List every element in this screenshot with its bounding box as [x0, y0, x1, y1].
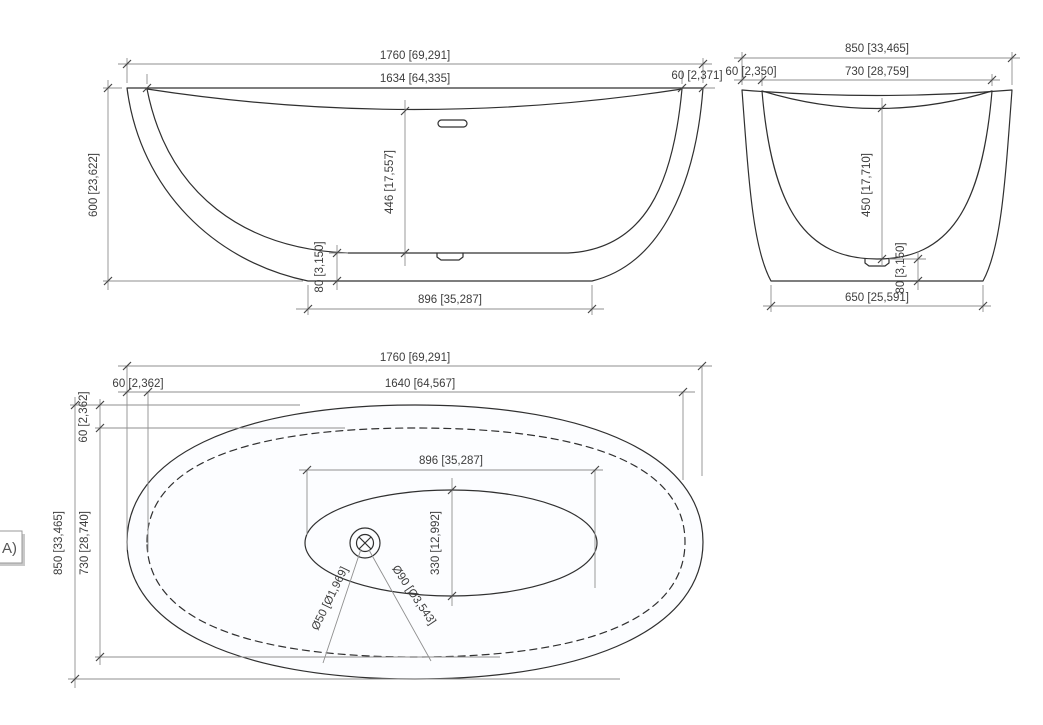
drawing-canvas: 1760 [69,291] 1634 [64,335] 60 [2,371] 6…: [0, 0, 1043, 725]
side-base-height-label: 80 [3,150]: [895, 242, 907, 293]
plan-outer-rim-outline: [127, 405, 703, 679]
front-total-width-label: 1760 [69,291]: [380, 50, 450, 62]
plan-rim-width-label: 730 [28,740]: [79, 511, 91, 575]
front-base-width-label: 896 [35,287]: [418, 294, 482, 306]
plan-total-length-label: 1760 [69,291]: [380, 352, 450, 364]
front-outer-outline: [127, 88, 703, 281]
front-rim-width-label: 1634 [64,335]: [380, 73, 450, 85]
side-outer-outline: [742, 90, 1012, 281]
side-base-width-label: 650 [25,591]: [845, 292, 909, 304]
overflow-slot: [438, 120, 467, 127]
view-label-box: A): [0, 531, 25, 566]
side-elevation-view: 850 [33,465] 60 [2,350] 730 [28,759] 450…: [725, 43, 1020, 312]
plan-view: 1760 [69,291] 60 [2,362] 1640 [64,567] 8…: [53, 352, 712, 688]
side-dim-total-width: 850 [33,465]: [734, 43, 1020, 85]
plan-rim-offset-v-label: 60 [2,362]: [78, 391, 90, 442]
front-elevation-view: 1760 [69,291] 1634 [64,335] 60 [2,371] 6…: [88, 50, 723, 315]
front-height-label: 600 [23,622]: [88, 153, 100, 217]
front-inner-depth-label: 446 [17,557]: [384, 150, 396, 214]
side-total-width-label: 850 [33,465]: [845, 43, 909, 55]
plan-basin-width-label: 330 [12,992]: [430, 511, 442, 575]
side-dim-rim-width: 60 [2,350] 730 [28,759]: [725, 66, 1000, 86]
front-rim-offset-label: 60 [2,371]: [671, 70, 722, 82]
front-base-height-label: 80 [3,150]: [314, 241, 326, 292]
view-label-text: A): [2, 540, 17, 557]
plan-total-width-label: 850 [33,465]: [53, 511, 65, 575]
plan-rim-length-label: 1640 [64,567]: [385, 378, 455, 390]
side-rim-width-label: 730 [28,759]: [845, 66, 909, 78]
plan-basin-length-label: 896 [35,287]: [419, 455, 483, 467]
plan-rim-offset-h-label: 60 [2,362]: [112, 378, 163, 390]
front-dim-base-width: 896 [35,287]: [296, 285, 604, 315]
side-rim-offset-label: 60 [2,350]: [725, 66, 776, 78]
bathtub-technical-drawing: 1760 [69,291] 1634 [64,335] 60 [2,371] 6…: [0, 0, 1043, 725]
side-dim-base-width: 650 [25,591]: [763, 285, 991, 312]
side-inner-depth-label: 450 [17,710]: [861, 153, 873, 217]
